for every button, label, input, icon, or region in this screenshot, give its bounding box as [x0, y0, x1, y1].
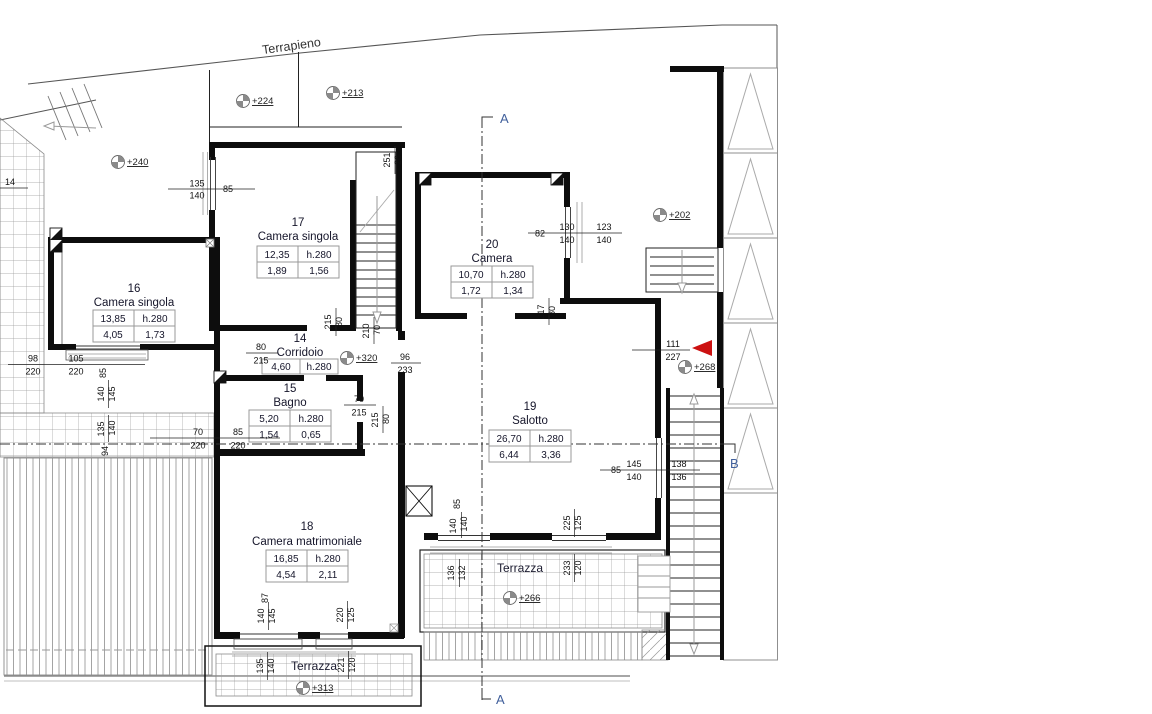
dim-text: 140	[266, 658, 276, 673]
stair-northwest-ramp	[44, 84, 102, 140]
terrace-south-label: Terrazza	[291, 659, 337, 673]
dim-text: 140	[189, 191, 204, 201]
terrace-center-stripe-band	[424, 632, 642, 660]
wall-segment	[717, 292, 723, 388]
spot-label: +224	[252, 96, 273, 107]
dim-text: 85	[98, 368, 108, 378]
room-name: Camera singola	[258, 231, 339, 243]
spot-symbol	[112, 156, 125, 169]
room-height: h.280	[306, 250, 331, 261]
wall-segment	[357, 422, 363, 456]
window-salotto-east	[657, 438, 662, 498]
dim-text: 105	[68, 354, 83, 364]
room-number: 14	[294, 333, 307, 345]
wall-segment	[415, 172, 421, 319]
window-bay-room18a	[234, 639, 302, 649]
room-value1: 1,89	[267, 266, 287, 277]
wall-segment	[396, 142, 402, 331]
dim-text: 215	[323, 314, 333, 329]
dim-text: 225	[562, 515, 572, 530]
stair-east-long	[666, 388, 724, 660]
dim-text: 136	[671, 472, 686, 482]
room-number: 16	[128, 283, 141, 295]
terrain-line-2	[0, 100, 96, 120]
dim-text: 80	[547, 306, 557, 316]
flue-box	[406, 486, 432, 516]
dim-text: 140	[596, 235, 611, 245]
wall-segment	[717, 66, 723, 248]
room-height: h.280	[142, 314, 167, 325]
window-room20	[566, 207, 571, 258]
room-number: 20	[486, 239, 499, 251]
spot-symbol	[504, 592, 517, 605]
stair-well	[356, 152, 396, 328]
spot-label: +202	[669, 210, 690, 221]
dim-text: 140	[96, 386, 106, 401]
room-value2: 1,56	[309, 266, 329, 277]
room-name: Camera	[472, 253, 514, 265]
sill-room20	[577, 202, 582, 263]
dim-text: 85	[611, 465, 621, 475]
room-height: h.280	[306, 362, 331, 373]
wall-segment	[209, 325, 307, 331]
wall-segment	[415, 172, 570, 178]
pillar-symbol	[551, 173, 563, 185]
wall-segment	[214, 632, 240, 639]
stair-rail-right	[720, 388, 724, 660]
stair-treads	[48, 84, 102, 140]
wall-segment	[298, 632, 320, 639]
wall-segment	[398, 372, 405, 638]
dim-text: 80	[256, 342, 266, 352]
room-area: 13,85	[100, 314, 125, 325]
wall-segment	[564, 258, 570, 304]
wall-segment	[655, 298, 661, 438]
room-value2: 3,36	[541, 450, 561, 461]
wall-segment	[48, 344, 76, 350]
spot-symbol	[297, 682, 310, 695]
pillar-symbol	[419, 173, 431, 185]
room-number: 15	[284, 383, 297, 395]
dim-text: 123	[596, 222, 611, 232]
dim-text: 221	[336, 657, 346, 672]
wall-segment	[214, 375, 304, 381]
dim-text: 14	[5, 177, 15, 187]
windows-room18-south	[240, 634, 348, 639]
wall-segment	[326, 375, 358, 381]
dim-text: 227	[665, 352, 680, 362]
room-15-label: 15 Bagno 5,20 h.280 1,54 0,65	[249, 383, 331, 442]
dim-text: 132	[457, 565, 467, 580]
section-label-a-top: A	[500, 111, 509, 126]
spot-label: +320	[356, 353, 377, 364]
spot-label: +266	[519, 593, 540, 604]
room-value2: 1,34	[503, 286, 523, 297]
spot-symbol	[237, 95, 250, 108]
room-value1: 1,54	[259, 430, 279, 441]
dim-text: 135	[255, 658, 265, 673]
dim-text: 233	[562, 560, 572, 575]
spot-symbol	[654, 209, 667, 222]
wall-segment	[398, 331, 405, 340]
stair-outline	[638, 556, 670, 612]
room-area: 16,85	[273, 554, 298, 565]
room-20-label: 20 Camera 10,70 h.280 1,72 1,34	[451, 239, 533, 298]
room-height: h.280	[538, 434, 563, 445]
wall-segment	[560, 298, 661, 304]
dim-text: 215	[351, 408, 366, 418]
dim-text: 80	[334, 317, 344, 327]
room-name: Bagno	[273, 397, 306, 409]
band-outline	[724, 68, 778, 660]
room-value1: 6,44	[499, 450, 519, 461]
stair-treads	[670, 396, 720, 656]
dim-text: 120	[573, 560, 583, 575]
room-17-label: 17 Camera singola 12,35 h.280 1,89 1,56	[257, 217, 339, 278]
dim-text: 215	[370, 412, 380, 427]
room-19-label: 19 Salotto 26,70 h.280 6,44 3,36	[489, 401, 571, 462]
room-area: 4,60	[271, 362, 291, 373]
dim-text: 82	[535, 229, 545, 239]
dim-text: 145	[626, 459, 641, 469]
pillar-symbol-tall	[50, 228, 62, 252]
section-elbow-b	[726, 444, 735, 453]
floor-plan-drawing: Terrapieno	[0, 0, 1152, 714]
wall-segment	[348, 632, 404, 639]
room-number: 17	[292, 217, 305, 229]
band-triangles	[728, 74, 773, 489]
dim-text: 217	[536, 304, 546, 319]
room-number: 18	[301, 521, 314, 533]
dim-text: 130	[559, 222, 574, 232]
spot-label: +213	[342, 88, 363, 99]
dim-text: 145	[267, 608, 277, 623]
spot-symbol	[341, 352, 354, 365]
dim-text: 120	[347, 657, 357, 672]
wall-segment	[209, 142, 215, 160]
room-area: 10,70	[458, 270, 483, 281]
stair-treads	[356, 225, 396, 315]
spot-symbol	[327, 87, 340, 100]
wall-segment	[48, 237, 220, 243]
vent-symbol	[390, 624, 398, 632]
room-16-label: 16 Camera singola 13,85 h.280 4,05 1,73	[93, 283, 175, 342]
stair-main	[356, 152, 396, 328]
dim-text: 140	[107, 420, 117, 435]
dim-text: 220	[230, 441, 245, 451]
stair-direction-line	[48, 126, 96, 128]
section-label-b: B	[730, 456, 739, 471]
arrow-left-icon	[44, 122, 54, 130]
window-room16	[76, 346, 140, 349]
window-bay-room18b	[316, 639, 352, 649]
site-boundary: Terrapieno	[0, 25, 777, 142]
spot-symbol	[679, 361, 692, 374]
dim-text: 85	[452, 499, 462, 509]
diag-hatch-corner	[642, 630, 668, 660]
room-14-label: 14 Corridoio 4,60 h.280	[262, 333, 338, 374]
wall-segment	[490, 533, 552, 540]
stair-rail-left	[666, 388, 670, 660]
wall-segment	[670, 66, 724, 72]
stair-southwest-gray	[638, 556, 670, 612]
dim-text: 135	[96, 421, 106, 436]
dim-text: 85	[233, 427, 243, 437]
dim-text: 85	[223, 184, 233, 194]
dim-text: 111	[666, 339, 680, 349]
dim-text: 220	[68, 367, 83, 377]
dim-text: 138	[671, 459, 686, 469]
room-value2: 0,65	[301, 430, 321, 441]
room-height: h.280	[500, 270, 525, 281]
dim-text: 125	[346, 607, 356, 622]
arrow-down-icon	[690, 644, 698, 654]
terrain-line	[28, 25, 777, 84]
wall-segment	[415, 313, 467, 319]
dim-text: 125	[573, 515, 583, 530]
stair-northeast	[646, 248, 718, 293]
section-elbow-a-bottom	[482, 688, 491, 699]
room-area: 5,20	[259, 414, 279, 425]
dim-text: 80	[381, 414, 391, 424]
dim-text: 140	[559, 235, 574, 245]
dim-text: 140	[626, 472, 641, 482]
dim-text: 145	[107, 386, 117, 401]
wall-segment	[424, 533, 438, 540]
room-value2: 2,11	[319, 570, 338, 581]
room-18-label: 18 Camera matrimoniale 16,85 h.280 4,54 …	[252, 521, 362, 582]
room-area: 26,70	[496, 434, 521, 445]
floor-plan: Terrapieno	[0, 0, 1152, 714]
dim-text: 140	[256, 608, 266, 623]
spot-label: +240	[127, 157, 148, 168]
dim-text: 140	[459, 516, 469, 531]
window-room17	[211, 157, 216, 210]
dim-text: 135	[189, 179, 204, 189]
dim-text: 70	[372, 325, 382, 335]
room-value1: 4,05	[103, 330, 123, 341]
dim-text: 136	[446, 565, 456, 580]
section-label-a-bottom: A	[496, 692, 505, 707]
room-area: 12,35	[264, 250, 289, 261]
dim-text: 251	[382, 152, 392, 167]
dim-text: 140	[448, 518, 458, 533]
dim-text: 215	[253, 356, 268, 366]
wall-segment	[214, 237, 220, 455]
dim-text: 70	[354, 394, 364, 404]
wall-segment	[655, 498, 661, 540]
wall-segment	[48, 237, 54, 350]
room-value2: 1,73	[145, 330, 165, 341]
spot-label: +313	[312, 683, 333, 694]
pillar-symbol	[214, 371, 226, 383]
room-height: h.280	[298, 414, 323, 425]
east-slope-band	[724, 68, 778, 660]
room-value1: 4,54	[276, 570, 296, 581]
wall-segment	[140, 344, 220, 350]
terrace-center-label: Terrazza	[497, 561, 543, 575]
room-height: h.280	[315, 554, 340, 565]
dim-text: 233	[397, 365, 412, 375]
dim-text: 70	[193, 427, 203, 437]
band-cells	[724, 153, 778, 493]
room-name: Camera matrimoniale	[252, 536, 362, 548]
dim-text: 220	[335, 607, 345, 622]
wall-segment	[606, 533, 661, 540]
room-name: Camera singola	[94, 297, 175, 309]
section-elbow-a-top	[482, 117, 493, 128]
spot-label: +268	[694, 362, 715, 373]
dim-text: 220	[190, 441, 205, 451]
dim-text: 87	[260, 593, 270, 603]
room-name: Corridoio	[277, 347, 324, 359]
dim-text: 220	[25, 367, 40, 377]
dim-text: 98	[28, 354, 38, 364]
wall-segment	[350, 180, 356, 331]
vent-symbol	[206, 239, 214, 247]
dim-text: 96	[400, 352, 410, 362]
entrance-arrow-icon	[692, 340, 712, 356]
deck-west	[4, 458, 212, 675]
room-number: 19	[524, 401, 537, 413]
dim-text: 94	[100, 446, 110, 456]
dim-text: 26	[393, 155, 403, 165]
room-name: Salotto	[512, 415, 548, 427]
wall-segment	[209, 142, 405, 148]
room-value1: 1,72	[461, 286, 481, 297]
wall-segment	[214, 449, 220, 639]
dim-text: 210	[361, 323, 371, 338]
